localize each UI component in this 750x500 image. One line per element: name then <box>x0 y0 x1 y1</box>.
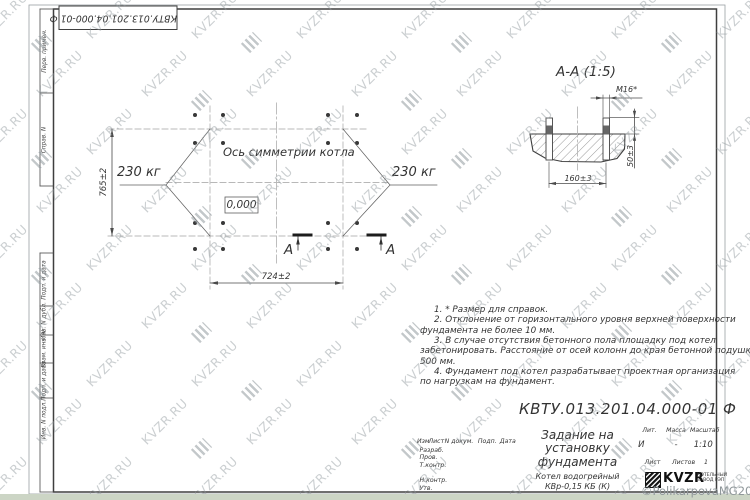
document-title-line2: установку <box>518 442 637 455</box>
dim-bolt-spacing-160: 160±3 <box>550 175 606 183</box>
main-frame <box>54 9 717 492</box>
note-line: фундамента не более 10 мм. <box>420 326 720 336</box>
load-label-right: 230 кг <box>392 166 436 179</box>
row-nkontr: Н.контр. <box>420 478 448 484</box>
dim-width-724: 724±2 <box>251 273 301 282</box>
load-label-left: 230 кг <box>117 166 161 179</box>
anchor-bolt-dots <box>193 113 359 251</box>
row-tkontr: Т.контр. <box>420 463 447 469</box>
kvzr-logo-sub-line2: ЗАВОД РЭП <box>697 478 724 483</box>
titleblock-designation: КВТУ.013.201.04.000-01 Ф <box>519 402 716 417</box>
note-line: 4. Фундамент под котел разрабатывает про… <box>420 367 720 377</box>
bolt-thread-label: М16* <box>616 86 637 94</box>
col-data: Дата <box>498 439 519 445</box>
sheet-label: Лист <box>637 460 668 466</box>
row-utv: Утв. <box>420 486 433 492</box>
copyright-watermark: ©PolikarpovaMG2021 <box>641 484 750 498</box>
bottom-edge-band <box>0 494 750 500</box>
foundation-axes <box>108 106 390 289</box>
drawing-sheet: КВТУ.013.201.04.000-01 Ф Перв. примен. С… <box>0 0 750 500</box>
section-letter-right: А <box>386 244 395 258</box>
lit-value: И <box>637 441 646 450</box>
corner-stamp-designation: КВТУ.013.201.04.000-01 Ф <box>59 6 177 30</box>
row-prov: Пров. <box>420 455 438 461</box>
note-line: 3. В случае отсутствия бетонного пола пл… <box>420 336 720 346</box>
document-title-line1: Задание на <box>518 429 637 442</box>
strip-label-sprav-n: Справ. N <box>43 93 51 186</box>
drawing-linework <box>0 0 750 500</box>
col-ndoc: N докум. <box>441 439 477 445</box>
notes: 1. * Размер для справок.2. Отклонение от… <box>420 305 720 388</box>
document-title-line3: фундамента <box>518 456 637 469</box>
col-izm: Изм <box>417 439 429 445</box>
dim-protrusion-50: 50±3 <box>627 134 635 178</box>
sheets-label: Листов <box>672 460 695 466</box>
note-line: 1. * Размер для справок. <box>420 305 720 315</box>
dim-height-765: 765±2 <box>100 157 109 207</box>
note-line: по нагрузкам на фундамент. <box>420 377 720 387</box>
mass-value: - <box>662 441 690 450</box>
section-cut-marks <box>294 235 385 250</box>
note-line: 2. Отклонение от горизонтального уровня … <box>420 315 720 325</box>
scale-value: 1:10 <box>690 441 717 450</box>
col-podp: Подп. <box>477 439 498 445</box>
product-name: Котел водогрейный КВр-0,15 КБ (К) <box>518 472 637 491</box>
elevation-mark: 0,000 <box>225 200 258 211</box>
row-razrab: Разраб. <box>420 448 444 454</box>
strip-label-inv-podl: Инв. N подл. <box>43 391 51 450</box>
section-letter-left: А <box>284 244 293 258</box>
col-list: Лист <box>429 439 442 445</box>
note-line: забетонировать. Расстояние от осей колон… <box>420 346 720 356</box>
symmetry-axis-label: Ось симметрии котла <box>223 147 348 159</box>
note-line: 500 мм. <box>420 357 720 367</box>
kvzr-logo-sub: КОТЕЛЬНЫЙ ЗАВОД РЭП <box>697 473 727 484</box>
document-title: Задание на установку фундамента <box>518 429 637 469</box>
product-name-line2: КВр-0,15 КБ (К) <box>518 482 637 492</box>
lit-header: Лит. <box>637 428 662 434</box>
sheets-value: 1 <box>704 460 708 466</box>
section-title: А-А (1:5) <box>556 66 616 80</box>
scale-header: Масштаб <box>690 428 717 434</box>
product-name-line1: Котел водогрейный <box>518 472 637 482</box>
outer-border <box>29 5 725 494</box>
strip-label-perv-primen: Перв. примен. <box>43 9 51 93</box>
mass-header: Масса <box>662 428 690 434</box>
